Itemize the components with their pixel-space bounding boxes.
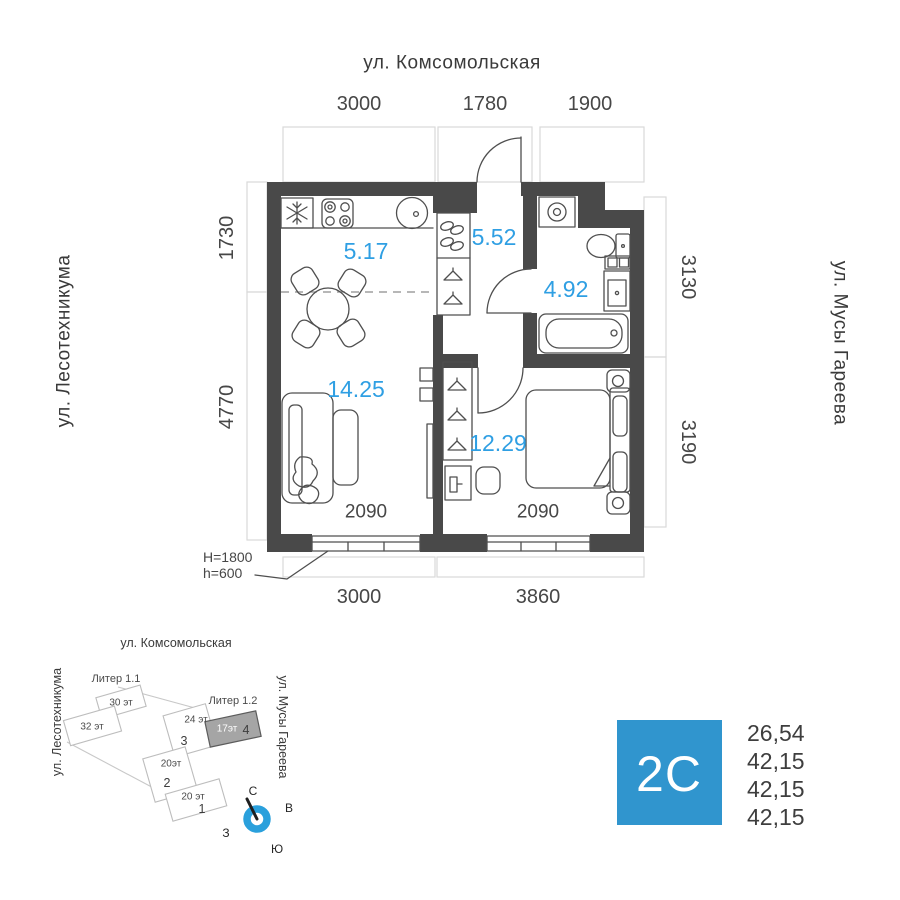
wall-bottom-b — [420, 534, 487, 552]
washer-shelf-icon — [605, 256, 630, 269]
bath-sink-icon — [604, 271, 630, 311]
bedroom-door — [478, 368, 523, 413]
area-label-hall: 5.52 — [472, 224, 517, 250]
area-label-bathroom: 4.92 — [544, 276, 589, 302]
blanket — [293, 457, 317, 487]
dining-table — [288, 264, 368, 350]
building-20a-number: 2 — [164, 776, 171, 790]
doors — [477, 137, 531, 413]
dim-top-2: 1780 — [463, 93, 508, 115]
nightstand-icon — [607, 492, 630, 514]
street-label-right: ул. Мусы Гареева — [830, 261, 851, 425]
bedroom-closet — [443, 362, 472, 460]
kitchen-sink-icon — [397, 198, 428, 229]
wall-divider — [433, 315, 443, 534]
compass-north: С — [249, 784, 258, 798]
walls — [267, 182, 644, 552]
blanket — [299, 485, 319, 503]
dim-right-2: 3190 — [677, 420, 699, 465]
street-label-left: ул. Лесотехникума — [54, 255, 75, 428]
plan-labels: ул. Комсомольская ул. Лесотехникума ул. … — [54, 53, 851, 609]
entrance-door — [477, 137, 521, 182]
unit-area-3: 42,15 — [747, 776, 805, 802]
floor-plan-svg: ул. Комсомольская ул. Лесотехникума ул. … — [0, 0, 900, 900]
dim-top-1: 3000 — [337, 93, 382, 115]
stove-icon — [322, 199, 353, 228]
window-height-H: H=1800 — [203, 549, 253, 565]
dim-top-3: 1900 — [568, 93, 613, 115]
wall-bath-upper — [523, 196, 537, 269]
unit-area-1: 26,54 — [747, 720, 805, 746]
area-label-kitchen: 5.17 — [344, 238, 389, 264]
hanger-icon — [444, 268, 462, 280]
area-label-living: 14.25 — [327, 376, 385, 402]
wall-top-right — [521, 182, 583, 196]
hanger-icon — [444, 292, 462, 304]
floorplan-page: ул. Комсомольская ул. Лесотехникума ул. … — [0, 0, 900, 900]
window-height-h: h=600 — [203, 565, 243, 581]
window-bedroom — [487, 536, 590, 551]
building-17-number: 4 — [243, 723, 250, 737]
wall-chunk-hall — [433, 182, 477, 213]
liter-label-1: Литер 1.1 — [92, 673, 141, 685]
building-24-label: 24 эт — [184, 715, 208, 726]
window-height-leader — [255, 551, 328, 579]
toilet-icon — [587, 234, 630, 258]
wall-bottom-c — [590, 534, 644, 552]
chair — [289, 317, 322, 350]
window-width-1: 2090 — [345, 502, 387, 523]
bed-icon — [526, 388, 630, 492]
desk-chair-icon — [476, 467, 500, 494]
sofa-icon — [282, 393, 358, 504]
compass: С В З Ю — [222, 784, 293, 856]
wall-band-right — [523, 354, 630, 368]
dim-bottom-1: 3000 — [337, 586, 382, 608]
site-street-top: ул. Комсомольская — [120, 636, 231, 650]
wall-bottom-a — [267, 534, 312, 552]
wall-band-left — [443, 354, 478, 368]
unit-area-2: 42,15 — [747, 748, 805, 774]
washing-machine-icon — [539, 197, 575, 227]
dim-left-2: 4770 — [216, 385, 238, 430]
unit-card[interactable]: 2C 26,54 42,15 42,15 42,15 — [617, 720, 805, 830]
tv-unit-icon — [420, 368, 433, 498]
bathtub-icon — [539, 314, 628, 353]
building-32-label: 32 эт — [80, 722, 104, 733]
area-label-bedroom: 12.29 — [469, 430, 527, 456]
dim-bottom-2: 3860 — [516, 586, 561, 608]
chair — [335, 266, 368, 299]
compass-west: З — [222, 826, 229, 840]
wall-right — [630, 228, 644, 552]
bathroom-door — [487, 269, 531, 313]
building-24-number: 3 — [181, 734, 188, 748]
shoe-shelf-icon — [440, 220, 465, 252]
building-20a-label: 20эт — [161, 759, 182, 770]
site-plan: ул. Комсомольская ул. Лесотехникума ул. … — [50, 636, 293, 856]
compass-south: Ю — [271, 842, 283, 856]
site-street-right: ул. Мусы Гареева — [276, 676, 290, 779]
dim-right-1: 3130 — [677, 255, 699, 300]
fridge-icon — [281, 198, 313, 228]
unit-type-label: 2C — [636, 746, 702, 802]
street-label-top: ул. Комсомольская — [363, 53, 541, 74]
building-20b-label: 20 эт — [181, 792, 205, 803]
building-20b-number: 1 — [199, 802, 206, 816]
kitchen-furniture — [281, 198, 433, 351]
site-street-left: ул. Лесотехникума — [50, 668, 64, 776]
hall-closet — [437, 213, 470, 315]
compass-east: В — [285, 801, 293, 815]
dim-left-1: 1730 — [216, 216, 238, 261]
liter-label-2: Литер 1.2 — [209, 695, 258, 707]
unit-area-4: 42,15 — [747, 804, 805, 830]
window-width-2: 2090 — [517, 502, 559, 523]
building-17-label: 17эт — [217, 724, 238, 735]
wall-corner-block — [578, 182, 605, 228]
desk-icon — [445, 466, 471, 500]
window-living — [312, 536, 420, 551]
building-30-label: 30 эт — [109, 698, 133, 709]
wall-left — [267, 182, 281, 552]
chair — [334, 316, 367, 349]
wall-step — [605, 210, 644, 228]
